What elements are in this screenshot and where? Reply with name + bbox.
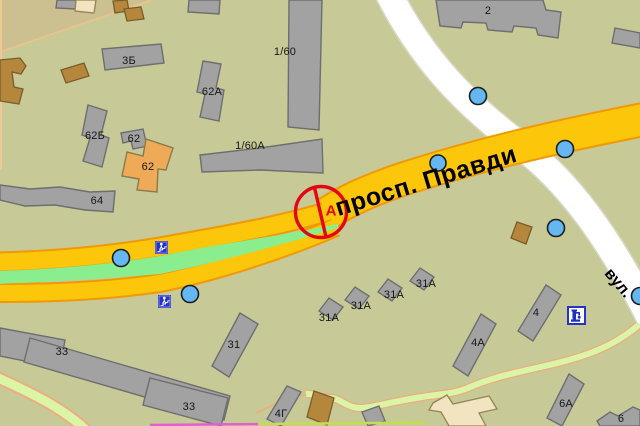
footpath (0, 377, 86, 426)
poi-circle[interactable] (430, 155, 446, 171)
building-orange (122, 139, 173, 192)
bottom-road-line (258, 423, 425, 425)
building (612, 28, 640, 48)
map-layer (0, 0, 640, 426)
building (56, 0, 77, 9)
poi-circle[interactable] (548, 220, 565, 237)
building (121, 129, 147, 149)
building (518, 285, 561, 341)
building-brown (0, 58, 26, 104)
building (436, 0, 561, 38)
building (200, 139, 323, 173)
building-cream (429, 395, 497, 426)
building (453, 314, 496, 376)
map-canvas[interactable]: А просп. Правди вул. 3Б 62А 62Б 62 62 1/… (0, 0, 640, 426)
underground-crossing-icon[interactable] (155, 241, 168, 254)
building (345, 287, 369, 309)
poi-circle[interactable] (182, 286, 199, 303)
poi-circle[interactable] (557, 141, 574, 158)
water-pump-icon[interactable] (567, 306, 586, 325)
building (378, 279, 402, 301)
building-cream (75, 0, 96, 13)
building (102, 44, 164, 70)
building-brown (61, 63, 89, 83)
building (197, 61, 224, 121)
building (0, 185, 115, 212)
building (410, 268, 434, 290)
underground-crossing-icon[interactable] (158, 295, 171, 308)
bottom-road-line (150, 424, 258, 425)
building (319, 298, 343, 320)
building-brown (124, 7, 144, 21)
building (547, 374, 584, 426)
building-brown (511, 222, 532, 244)
building (288, 0, 322, 130)
poi-circle[interactable] (470, 88, 487, 105)
building (188, 0, 220, 14)
poi-circle[interactable] (113, 250, 130, 267)
building (597, 407, 640, 426)
building (212, 313, 258, 377)
building (82, 105, 109, 167)
